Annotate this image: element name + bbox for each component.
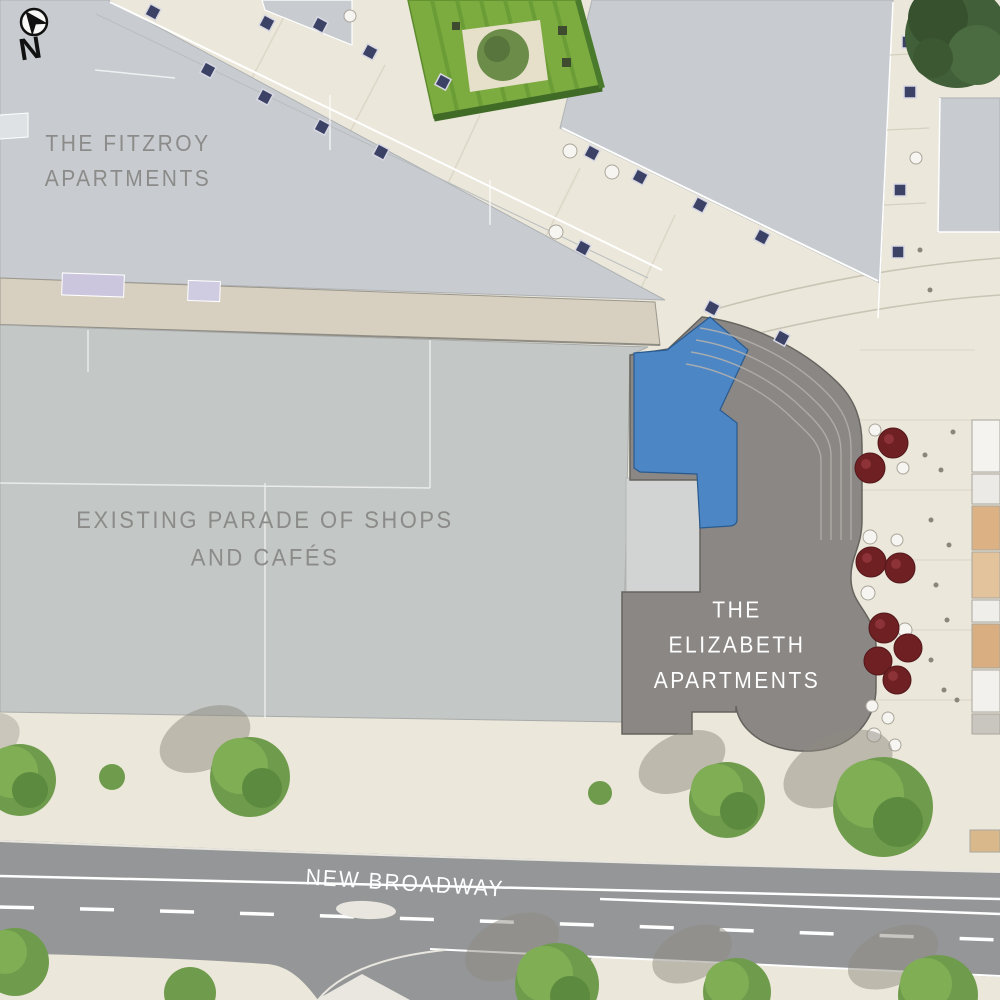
rooflight <box>188 280 221 301</box>
existing-parade-label: EXISTING PARADE OF SHOPS AND CAFÉS <box>76 502 453 577</box>
tree <box>689 762 765 838</box>
site-plan-map: THE FITZROY APARTMENTS EXISTING PARADE O… <box>0 0 1000 1000</box>
fitzroy-label-line2: APARTMENTS <box>45 162 212 197</box>
elizabeth-label-line3: APARTMENTS <box>654 664 821 699</box>
tree <box>833 757 933 857</box>
lane-east-building <box>938 98 1000 232</box>
stall-tan-roof <box>970 830 1000 852</box>
elizabeth-apartments-label: THE ELIZABETH APARTMENTS <box>654 593 821 699</box>
fitzroy-apartments-label: THE FITZROY APARTMENTS <box>45 127 212 197</box>
parade-label-line2: AND CAFÉS <box>76 539 453 576</box>
shops-rear-block <box>626 478 700 592</box>
fitzroy-label-line1: THE FITZROY <box>45 127 212 162</box>
parade-label-line1: EXISTING PARADE OF SHOPS <box>76 502 453 539</box>
fitzroy-roof-detail <box>0 113 28 139</box>
rooflight <box>62 273 125 297</box>
tree <box>588 781 612 805</box>
planter <box>452 22 460 30</box>
tree <box>99 764 125 790</box>
elizabeth-label-line1: THE <box>654 593 821 628</box>
tree <box>210 737 290 817</box>
planter <box>562 58 571 67</box>
elizabeth-label-line2: ELIZABETH <box>654 628 821 663</box>
planter <box>558 26 567 35</box>
